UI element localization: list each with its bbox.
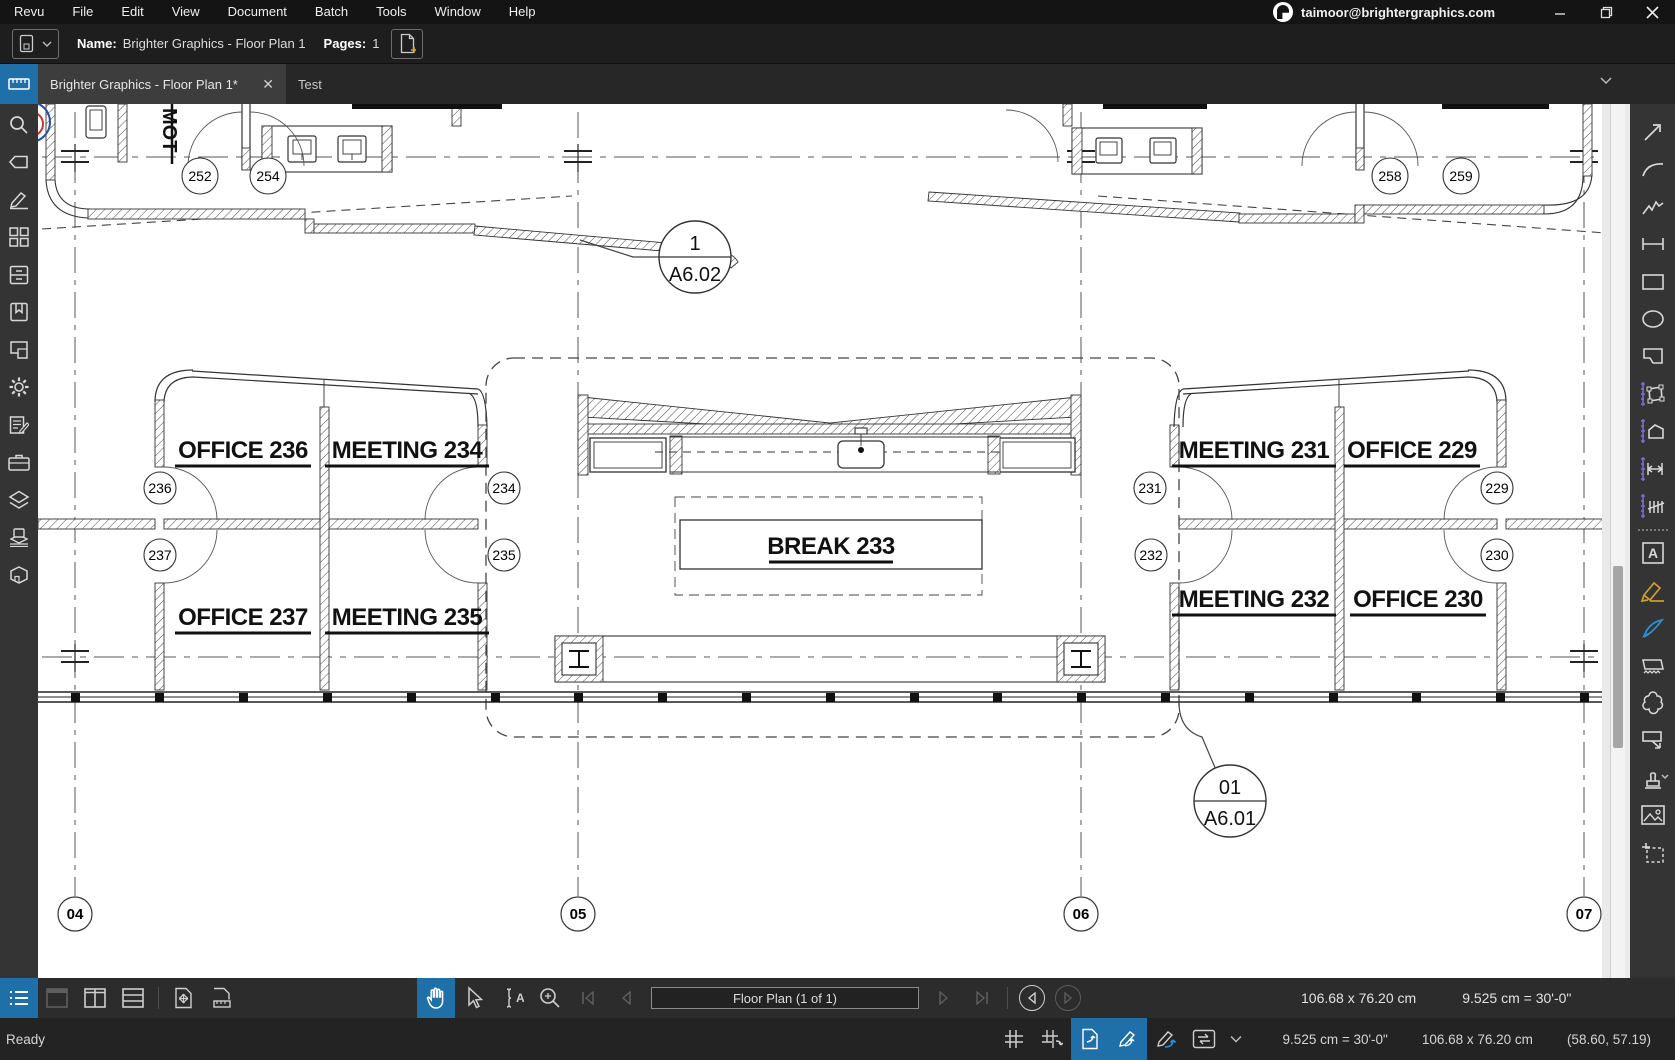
select-cursor-icon[interactable] [455,978,493,1018]
single-pane-icon[interactable] [38,978,76,1018]
name-label: Name: [77,36,117,51]
first-page-icon[interactable] [569,978,607,1018]
snapshot-icon[interactable] [1640,834,1666,871]
ruler-tab-icon[interactable] [0,64,38,104]
left-office-block [38,370,487,690]
title-bar: Revu File Edit View Document Batch Tools… [0,0,1675,24]
scrollbar-thumb[interactable] [1613,566,1623,748]
new-page-icon[interactable] [391,29,423,59]
close-icon[interactable] [1629,0,1675,24]
status-ready: Ready [6,1032,45,1047]
bookmarks-icon[interactable] [0,294,38,332]
rectangle-icon[interactable] [1641,263,1665,300]
grid-icon[interactable] [995,1018,1033,1060]
right-tool-bar: A [1630,64,1675,978]
status-bar: Ready 9.525 cm = 30'-0" 106.68 x 76.20 c… [0,1018,1675,1060]
stamp-icon[interactable] [1637,759,1669,796]
svg-text:234: 234 [492,480,516,496]
svg-text:01: 01 [1219,777,1241,799]
svg-text:231: 231 [1138,480,1162,496]
svg-text:MEETING 234: MEETING 234 [332,437,484,464]
layers-icon[interactable] [0,481,38,519]
image-icon[interactable] [1640,796,1666,833]
status-scale[interactable]: 9.525 cm = 30'-0" [1283,1032,1388,1047]
callout-a601[interactable]: 01 A6.01 [1179,702,1266,837]
centerlines [42,157,1606,657]
snap-to-markup-icon[interactable] [1109,1018,1147,1060]
measure-count-icon[interactable] [1640,487,1666,524]
chevron-down-icon[interactable] [1599,76,1613,86]
menu-revu[interactable]: Revu [0,0,58,24]
vertical-scrollbar[interactable] [1610,104,1625,978]
account-email[interactable]: taimoor@brightergraphics.com [1301,5,1495,20]
arrow-icon[interactable] [1642,113,1664,150]
svg-text:05: 05 [570,906,587,923]
tab-test[interactable]: Test [286,64,372,104]
menu-help[interactable]: Help [495,0,550,24]
svg-text:07: 07 [1576,906,1593,923]
svg-text:OFFICE 229: OFFICE 229 [1347,437,1477,464]
svg-text:237: 237 [148,547,172,563]
menu-window[interactable]: Window [421,0,495,24]
zoom-icon[interactable] [531,978,569,1018]
menu-document[interactable]: Document [214,0,301,24]
svg-text:254: 254 [256,168,280,184]
chevron-down-icon[interactable] [1223,1018,1249,1060]
drawing-canvas[interactable]: MOT [38,104,1630,978]
pages-label: Pages: [324,36,367,51]
svg-text:232: 232 [1139,547,1163,563]
svg-text:OFFICE 230: OFFICE 230 [1353,586,1483,613]
split-horizontal-icon[interactable] [114,978,152,1018]
page-field[interactable]: Floor Plan (1 of 1) [651,987,919,1009]
navigation-toolbar: A Floor Plan (1 of 1) 106.68 x 76.20 cm … [0,978,1675,1018]
menu-tools[interactable]: Tools [362,0,420,24]
svg-text:BREAK 233: BREAK 233 [767,533,895,560]
eraser-icon[interactable] [1640,647,1666,684]
3d-model-icon[interactable] [0,556,38,594]
curtain-wall [38,692,1610,702]
svg-text:OFFICE 237: OFFICE 237 [178,604,308,631]
sets-icon[interactable] [0,519,38,557]
svg-text:04: 04 [67,906,84,923]
tag-icon[interactable] [0,144,38,182]
revu-logo [1273,2,1293,22]
tool-chest-icon[interactable] [0,444,38,482]
menu-file[interactable]: File [58,0,107,24]
snap-to-content-icon[interactable] [1071,1018,1109,1060]
cloud-icon[interactable] [1641,684,1665,721]
snap-to-grid-icon[interactable] [1033,1018,1071,1060]
svg-text:259: 259 [1449,168,1473,184]
restore-icon[interactable] [1583,0,1629,24]
svg-text:230: 230 [1485,547,1509,563]
menu-batch[interactable]: Batch [301,0,362,24]
top-right-rooms [928,104,1592,223]
dimension-icon[interactable] [1640,226,1666,263]
search-icon[interactable] [0,106,38,144]
toolbar-divider [1638,529,1668,531]
svg-text:A: A [516,991,524,1005]
cut-label-bars [352,104,1549,109]
minimize-icon[interactable] [1537,0,1583,24]
file-access-icon[interactable] [0,256,38,294]
svg-text:235: 235 [492,547,516,563]
sync-views-icon[interactable] [1185,1018,1223,1060]
last-page-icon[interactable] [963,978,1001,1018]
page-margin [1602,104,1630,978]
svg-text:236: 236 [148,480,172,496]
polyline-icon[interactable] [1641,188,1665,225]
pan-hand-icon[interactable] [417,978,455,1018]
svg-text:229: 229 [1485,480,1509,496]
menu-view[interactable]: View [158,0,214,24]
tab-bar: Brighter Graphics - Floor Plan 1* ✕ Test [0,64,1675,104]
settings-gear-icon[interactable] [0,369,38,407]
tab-close-icon[interactable]: ✕ [262,76,274,93]
pages-value: 1 [372,36,379,51]
next-view-icon[interactable] [1055,985,1081,1011]
document-dropdown-icon[interactable] [12,29,59,59]
measure-perimeter-icon[interactable] [1640,413,1666,450]
svg-text:MEETING 232: MEETING 232 [1179,586,1330,613]
svg-text:252: 252 [188,168,212,184]
floor-plan-drawing[interactable]: MOT [38,104,1630,978]
spaces-icon[interactable] [0,331,38,369]
svg-text:A6.01: A6.01 [1204,808,1256,830]
svg-text:MEETING 235: MEETING 235 [332,604,483,631]
measure-area-icon[interactable] [1640,375,1666,412]
grid-lines [75,112,1584,896]
svg-text:OFFICE 236: OFFICE 236 [178,437,308,464]
markups-list-toggle-icon[interactable] [0,978,38,1018]
name-value: Brighter Graphics - Floor Plan 1 [123,36,306,51]
room-labels: OFFICE 236 MEETING 234 OFFICE 237 MEETIN… [175,437,1486,633]
ellipse-icon[interactable] [1641,300,1665,337]
top-left-rooms [46,104,738,268]
grid-bubbles: 04 05 06 07 [58,897,1601,931]
tab-floor-plan[interactable]: Brighter Graphics - Floor Plan 1* ✕ [38,64,286,104]
fit-width-icon[interactable] [203,978,241,1018]
page-scale: 9.525 cm = 30'-0" [1462,990,1571,1006]
callout-icon[interactable] [1640,722,1666,759]
tab-label: Test [298,77,322,92]
prev-page-icon[interactable] [607,978,645,1018]
svg-text:06: 06 [1073,906,1090,923]
fit-page-icon[interactable] [165,978,203,1018]
thumbnails-icon[interactable] [0,219,38,257]
callout-a602[interactable]: 1 A6.02 [580,221,731,293]
arc-icon[interactable] [1641,151,1665,188]
pen-icon[interactable] [1640,609,1666,646]
measure-length-icon[interactable] [1640,450,1666,487]
status-dimensions: 106.68 x 76.20 cm [1422,1032,1533,1047]
page-dimensions: 106.68 x 76.20 cm [1301,990,1416,1006]
room-label-mot: MOT [158,104,180,164]
text-select-icon[interactable]: A [493,978,531,1018]
svg-text:258: 258 [1378,168,1402,184]
menu-edit[interactable]: Edit [107,0,157,24]
svg-text:MOT: MOT [158,108,180,152]
left-panel-bar [0,64,38,978]
svg-text:A6.02: A6.02 [669,264,721,286]
highlighter-icon[interactable] [1640,572,1666,609]
markup-pen-icon[interactable] [0,181,38,219]
previous-view-icon[interactable] [1019,985,1045,1011]
file-info-bar: Name: Brighter Graphics - Floor Plan 1 P… [0,24,1675,64]
next-page-icon[interactable] [925,978,963,1018]
reuse-tool-icon[interactable] [1147,1018,1185,1060]
split-vertical-icon[interactable] [76,978,114,1018]
polygon-icon[interactable] [1641,338,1665,375]
tab-label: Brighter Graphics - Floor Plan 1* [50,77,238,92]
right-office-block [1170,370,1610,690]
text-box-icon[interactable]: A [1641,535,1665,572]
svg-text:MEETING 231: MEETING 231 [1179,437,1330,464]
svg-text:A: A [1647,545,1657,561]
status-coordinates: (58.60, 57.19) [1567,1032,1651,1047]
svg-text:1: 1 [689,233,700,255]
markups-list-icon[interactable] [0,406,38,444]
